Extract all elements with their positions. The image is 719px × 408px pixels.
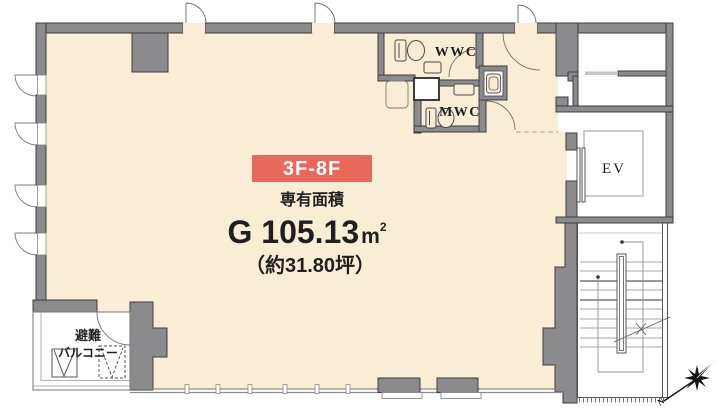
floor-plan-svg: 避難 バルコニー WWC MWC EV 3F-8F 専有面積 G 105.13m… (0, 0, 719, 408)
bottom-left-wall (33, 300, 97, 312)
balcony-label-line2: バルコニー (58, 346, 118, 360)
floor-plan: 避難 バルコニー WWC MWC EV 3F-8F 専有面積 G 105.13m… (0, 0, 719, 408)
wwc-sink-icon (424, 62, 441, 73)
wwc-label: WWC (435, 45, 478, 60)
window-swing-1 (15, 75, 36, 96)
walkline-dot-2 (596, 275, 600, 279)
door-arc-1 (186, 3, 206, 23)
area-heading: 専有面積 (280, 190, 345, 209)
floor-range-label: 3F-8F (283, 158, 341, 180)
bottom-pier-2 (437, 378, 478, 393)
wwc-toilet-bowl-icon (408, 41, 425, 61)
left-wall-seg2 (36, 95, 46, 123)
window-sash-1 (38, 75, 47, 95)
pipe-shaft (414, 78, 439, 100)
walkline-dot-1 (620, 240, 624, 244)
balcony-label-line1: 避難 (75, 328, 101, 343)
room-a-bottom-wall (618, 71, 666, 76)
ev-label: EV (602, 161, 626, 177)
bottom-sill-2 (441, 393, 481, 399)
door-opening-3 (515, 23, 537, 33)
top-wall-seg1 (36, 23, 183, 33)
wwc-bottom-wall (378, 75, 415, 81)
window-sash-4 (38, 233, 47, 255)
mwc-label: MWC (439, 105, 481, 120)
ev-bottom-wall (556, 217, 673, 223)
ev-top-wall (556, 106, 673, 112)
ev-door-leaf-1 (577, 148, 580, 202)
evacuation-balcony: 避難 バルコニー (33, 312, 130, 390)
right-outer-wall (666, 23, 673, 222)
compass-highlight (697, 362, 713, 378)
bottom-sill-1 (382, 393, 422, 399)
column (132, 33, 168, 72)
area-tsubo: （約31.80坪） (245, 253, 375, 277)
ev-door-leaf-2 (582, 148, 585, 202)
area-unit-sup: 2 (380, 220, 387, 234)
bottom-pier-1 (378, 378, 420, 393)
mwc-toilet-tank-icon (426, 108, 436, 128)
top-wall-seg2 (205, 23, 312, 33)
mwc-sink-icon (454, 84, 474, 95)
area-value: G 105.13 (227, 214, 359, 250)
door-opening-2 (312, 23, 334, 33)
area-unit-m: m (361, 225, 380, 248)
stair-stringer (617, 254, 626, 353)
window-sash-2 (38, 123, 47, 145)
room-a-opening (585, 72, 618, 76)
door-arc-2 (315, 3, 335, 23)
ev-pier-bottom (566, 181, 577, 217)
wwc-toilet-tank-icon (395, 40, 406, 61)
left-wall-seg4 (36, 207, 46, 233)
door-opening-1 (183, 23, 205, 33)
window-swing-2 (15, 123, 36, 145)
left-wall-seg5 (36, 255, 46, 302)
top-wall-seg3 (334, 23, 515, 33)
window-swing-3 (15, 185, 36, 207)
ev-pier-top (566, 133, 577, 150)
window-swing-4 (15, 233, 36, 255)
wall-strip-top (556, 23, 578, 76)
window-sash-3 (38, 185, 47, 207)
left-wall-seg1 (36, 23, 46, 75)
wwc-left-wall (378, 33, 384, 77)
corridor-left-wall (573, 76, 578, 106)
door-arc-3 (518, 5, 536, 23)
left-wall-seg3 (36, 145, 46, 185)
